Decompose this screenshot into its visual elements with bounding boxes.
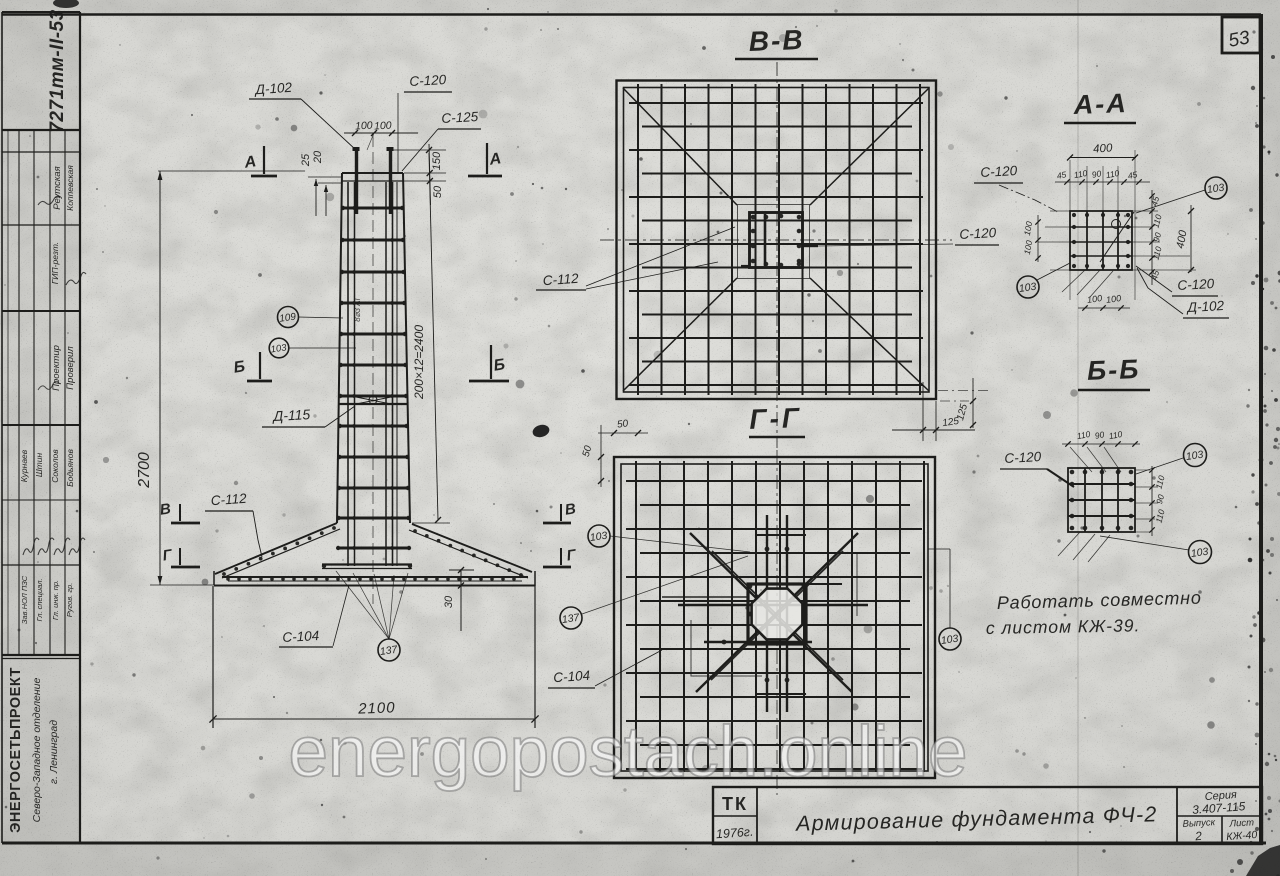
svg-text:Штин: Штин (34, 453, 44, 478)
svg-text:КЖ-40: КЖ-40 (1226, 829, 1258, 843)
svg-text:Соколов: Соколов (50, 449, 60, 483)
svg-text:С-120: С-120 (409, 72, 447, 89)
svg-text:2700: 2700 (136, 452, 153, 489)
svg-text:С-120: С-120 (959, 225, 997, 242)
svg-text:100: 100 (1086, 293, 1102, 305)
svg-text:ЭНЕРГОСЕТЬПРОЕКТ: ЭНЕРГОСЕТЬПРОЕКТ (8, 667, 24, 833)
svg-text:С-104: С-104 (553, 668, 591, 686)
svg-text:С-112: С-112 (542, 271, 579, 288)
svg-text:С-120: С-120 (1004, 449, 1042, 466)
svg-text:С-104: С-104 (282, 628, 320, 645)
svg-text:Реутская: Реутская (52, 166, 63, 209)
svg-text:90: 90 (1094, 429, 1105, 441)
svg-text:90: 90 (1091, 168, 1102, 180)
svg-text:С-112: С-112 (210, 491, 247, 508)
svg-text:103: 103 (940, 633, 959, 647)
svg-text:53: 53 (1227, 27, 1252, 51)
svg-text:200×12=2400: 200×12=2400 (412, 325, 426, 400)
svg-text:1976г.: 1976г. (716, 825, 754, 842)
svg-text:Северо-Западное отделение: Северо-Западное отделение (31, 678, 43, 823)
svg-text:103: 103 (1206, 182, 1225, 196)
svg-text:Лист: Лист (1228, 817, 1254, 829)
svg-text:8⌀3 АІ: 8⌀3 АІ (353, 297, 362, 321)
svg-text:Зав.НОЛ ПЗС: Зав.НОЛ ПЗС (20, 575, 29, 624)
svg-text:109: 109 (279, 311, 297, 324)
svg-text:50: 50 (616, 418, 629, 431)
svg-text:В-В: В-В (748, 24, 805, 57)
svg-text:Гл. инж. пр.: Гл. инж. пр. (51, 580, 60, 620)
svg-text:ТК: ТК (722, 794, 748, 814)
svg-text:Б-Б: Б-Б (1087, 354, 1141, 386)
svg-text:30: 30 (443, 595, 455, 608)
svg-text:45: 45 (1056, 169, 1067, 181)
svg-text:20: 20 (312, 150, 324, 164)
svg-text:Д-102: Д-102 (253, 80, 293, 98)
svg-text:103: 103 (1185, 449, 1204, 463)
svg-text:103: 103 (1018, 281, 1037, 295)
svg-text:45: 45 (1127, 169, 1138, 181)
svg-text:50: 50 (432, 185, 444, 198)
svg-text:С-120: С-120 (980, 163, 1018, 180)
svg-text:Б: Б (233, 358, 247, 376)
svg-text:г. Ленинград: г. Ленинград (48, 720, 60, 784)
svg-text:7271тм-II-53: 7271тм-II-53 (47, 9, 68, 132)
svg-text:С-120: С-120 (1177, 276, 1215, 293)
svg-text:ГИП-резт.: ГИП-резт. (50, 242, 60, 284)
svg-text:А-А: А-А (1072, 88, 1128, 120)
svg-text:103: 103 (270, 342, 288, 355)
svg-text:100: 100 (1105, 293, 1121, 305)
svg-text:Б: Б (493, 356, 507, 374)
svg-text:А: А (487, 150, 502, 169)
svg-text:150: 150 (431, 151, 443, 170)
svg-text:Курнаев: Курнаев (19, 449, 29, 482)
svg-text:25: 25 (300, 153, 312, 167)
svg-text:103: 103 (589, 530, 608, 544)
svg-text:с листом КЖ-39.: с листом КЖ-39. (986, 615, 1141, 638)
svg-text:400: 400 (1093, 142, 1114, 155)
svg-text:Ругов. гр.: Ругов. гр. (65, 583, 74, 618)
svg-text:Гл. специал.: Гл. специал. (35, 578, 44, 621)
svg-text:Проверил: Проверил (65, 346, 76, 390)
svg-text:С-125: С-125 (441, 109, 479, 126)
svg-text:Бодьянов: Бодьянов (65, 449, 75, 487)
svg-text:energopostach.online: energopostach.online (289, 713, 968, 792)
svg-text:Д-115: Д-115 (271, 406, 311, 424)
svg-text:Г-Г: Г-Г (749, 402, 803, 435)
svg-text:А: А (242, 153, 257, 172)
svg-text:Коппевская: Коппевская (65, 165, 75, 211)
svg-text:Д-102: Д-102 (1185, 298, 1225, 315)
svg-text:103: 103 (1190, 546, 1209, 560)
